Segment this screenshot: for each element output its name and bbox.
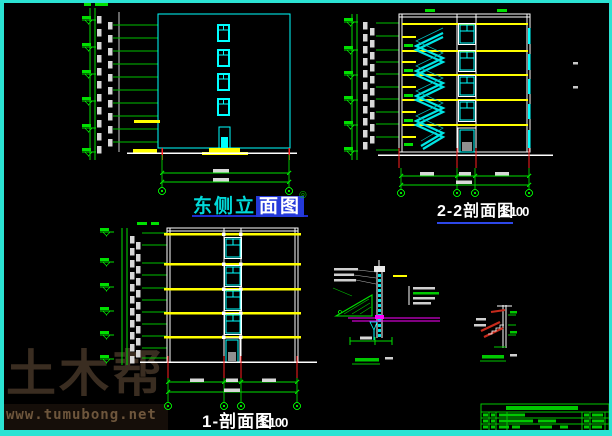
section-2-2-scale: 1:100 xyxy=(500,204,528,219)
east-title-selected-text: 面图 xyxy=(256,196,304,217)
east-elevation xyxy=(82,2,297,195)
section-1-1 xyxy=(100,222,317,410)
cad-canvas[interactable]: 土木帮 www.tumubong.net xyxy=(0,0,612,436)
section-1-1-scale: 1:100 xyxy=(259,415,287,430)
osnap-marker-icon: ◎ xyxy=(299,190,307,199)
section-1-1-title[interactable]: 1-剖面图1:100 xyxy=(202,413,287,430)
section-2-2-title[interactable]: 2-2剖面图1:100 xyxy=(437,204,528,220)
title-block xyxy=(481,404,609,433)
frame-bottom xyxy=(0,430,612,436)
frame-top xyxy=(0,0,612,3)
stair-detail xyxy=(474,305,517,361)
section-2-2 xyxy=(344,9,578,197)
east-title-text: 东侧立 xyxy=(193,196,256,217)
eave-detail xyxy=(333,260,440,364)
section-2-2-underline xyxy=(437,222,513,224)
east-elevation-title[interactable]: 东侧立面图 xyxy=(193,197,304,216)
frame-left xyxy=(0,0,4,436)
